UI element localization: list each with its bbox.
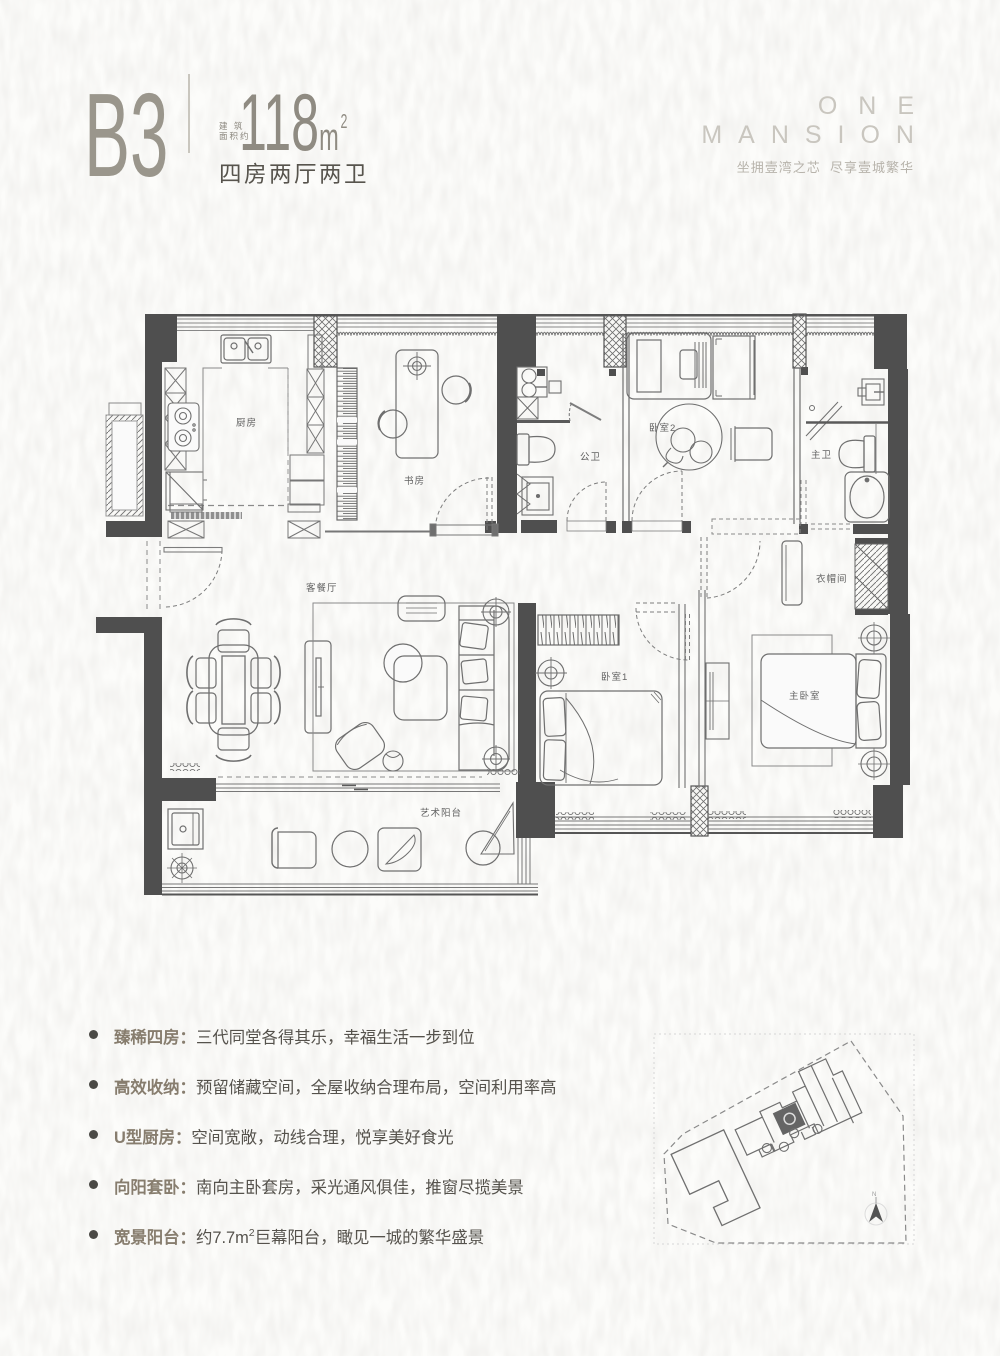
svg-text:N: N (872, 1192, 876, 1198)
